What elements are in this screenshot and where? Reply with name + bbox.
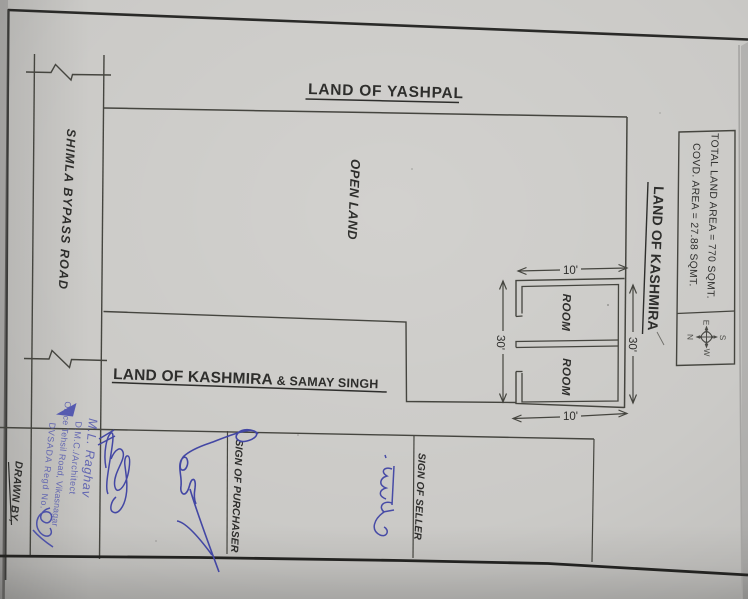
- svg-text:E: E: [701, 320, 710, 326]
- svg-text:S: S: [718, 335, 727, 341]
- svg-text:30': 30': [494, 335, 507, 350]
- svg-text:10': 10': [563, 411, 578, 423]
- svg-text:ROOM: ROOM: [559, 294, 572, 332]
- svg-text:N: N: [685, 334, 694, 340]
- svg-text:ROOM: ROOM: [559, 358, 572, 396]
- svg-text:30': 30': [626, 337, 639, 352]
- svg-text:10': 10': [563, 265, 578, 277]
- svg-text:W: W: [702, 349, 711, 357]
